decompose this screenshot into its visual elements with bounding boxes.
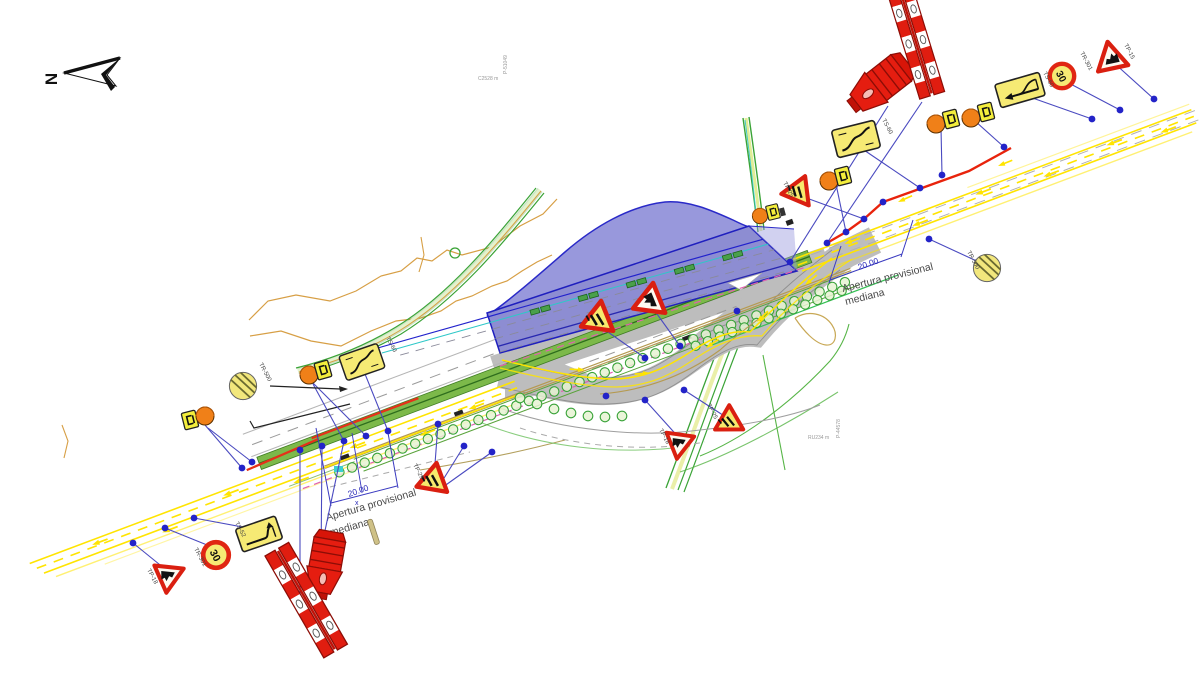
svg-text:N: N [42, 73, 61, 85]
svg-text:RU234 m: RU234 m [808, 435, 829, 441]
svg-text:P-44578: P-44578 [836, 419, 842, 438]
svg-text:C2528 m: C2528 m [478, 76, 498, 82]
svg-text:P-51049: P-51049 [503, 55, 509, 74]
